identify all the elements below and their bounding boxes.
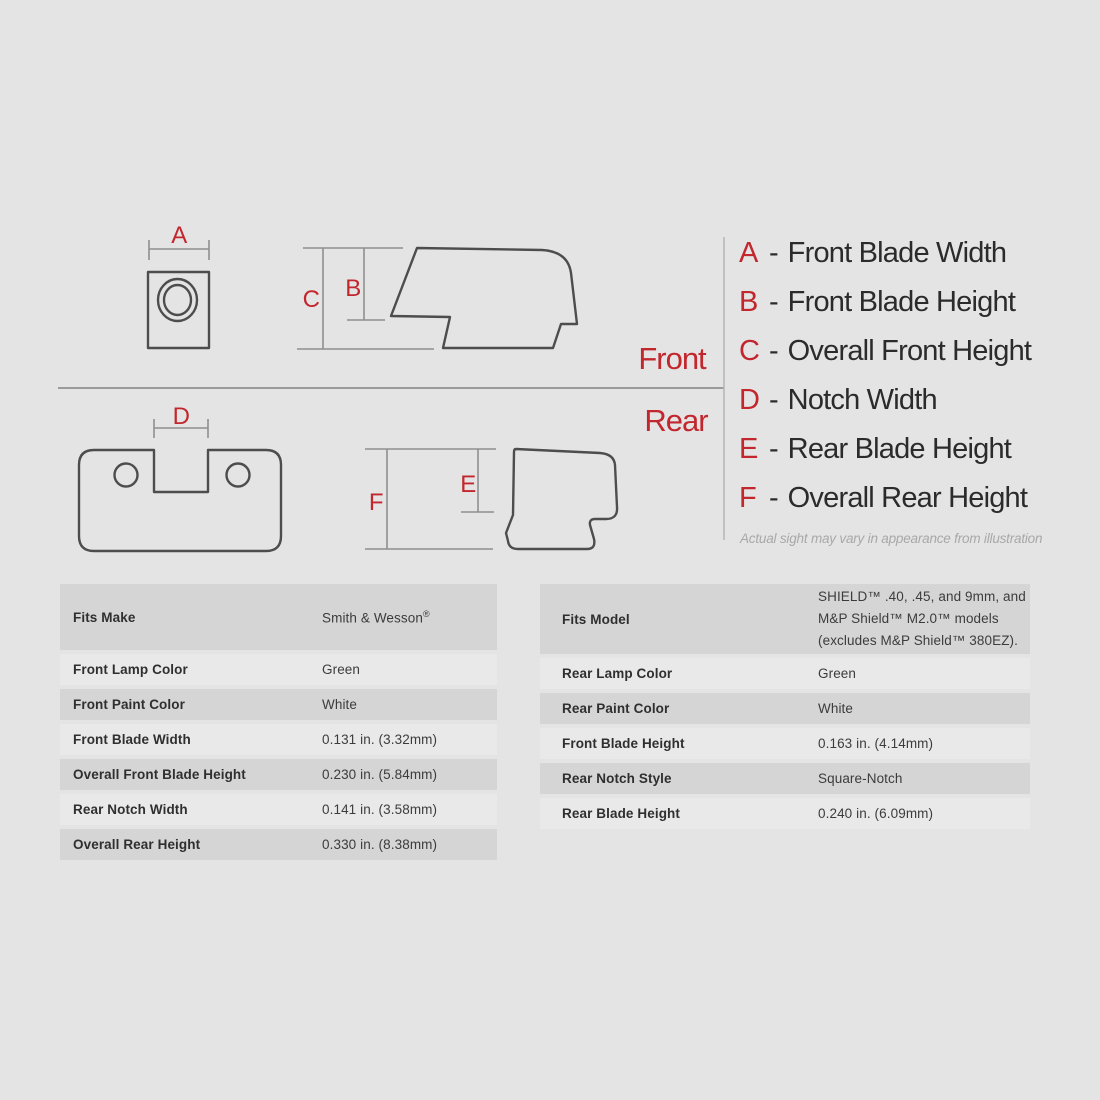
dim-letter-a: A — [171, 222, 187, 250]
legend-item-a: A - Front Blade Width — [739, 229, 1031, 278]
legend-key: E — [739, 433, 763, 466]
spec-value: Green — [818, 663, 1030, 685]
legend-separator: - — [769, 433, 779, 466]
legend-key: D — [739, 384, 763, 417]
legend-item-c: C - Overall Front Height — [739, 327, 1031, 376]
front-sight-side-view — [297, 248, 577, 349]
rear-sight-body — [79, 450, 281, 551]
spec-label: Rear Paint Color — [540, 701, 818, 716]
table-row: Front Paint Color White — [60, 689, 497, 720]
legend-separator: - — [769, 384, 779, 417]
rear-lamp-left — [115, 464, 138, 487]
legend-key: B — [739, 286, 763, 319]
legend-label: Overall Front Height — [788, 335, 1032, 368]
spec-label: Fits Model — [540, 612, 818, 627]
spec-label: Rear Lamp Color — [540, 666, 818, 681]
table-row: Overall Front Blade Height 0.230 in. (5.… — [60, 759, 497, 790]
spec-value: Square-Notch — [818, 768, 1030, 790]
table-row: Front Blade Height 0.163 in. (4.14mm) — [540, 728, 1030, 759]
dim-letter-c: C — [303, 286, 320, 314]
spec-label: Fits Make — [60, 610, 322, 625]
table-row: Front Blade Width 0.131 in. (3.32mm) — [60, 724, 497, 755]
legend-key: A — [739, 237, 763, 270]
spec-table-left: Fits Make Smith & Wesson® Front Lamp Col… — [60, 584, 497, 864]
spec-value: Smith & Wesson® — [322, 609, 430, 626]
table-row: Rear Blade Height 0.240 in. (6.09mm) — [540, 798, 1030, 829]
front-sight-body — [148, 272, 209, 348]
front-sight-profile — [391, 248, 577, 348]
legend-separator: - — [769, 286, 779, 319]
table-row: Rear Notch Style Square-Notch — [540, 763, 1030, 794]
table-row: Fits Model SHIELD™ .40, .45, and 9mm, an… — [540, 584, 1030, 654]
table-row: Front Lamp Color Green — [60, 654, 497, 685]
spec-label: Rear Blade Height — [540, 806, 818, 821]
legend-separator: - — [769, 237, 779, 270]
spec-value: 0.240 in. (6.09mm) — [818, 803, 1030, 825]
spec-label: Rear Notch Width — [60, 802, 322, 817]
table-row: Fits Make Smith & Wesson® — [60, 584, 497, 650]
spec-value: SHIELD™ .40, .45, and 9mm, and M&P Shiel… — [818, 586, 1030, 652]
table-row: Rear Notch Width 0.141 in. (3.58mm) — [60, 794, 497, 825]
spec-value: 0.330 in. (8.38mm) — [322, 837, 437, 852]
spec-table-right: Fits Model SHIELD™ .40, .45, and 9mm, an… — [540, 584, 1030, 833]
registered-mark: ® — [423, 609, 430, 619]
front-sight-front-view — [148, 240, 209, 348]
legend-item-d: D - Notch Width — [739, 376, 1031, 425]
spec-label: Front Paint Color — [60, 697, 322, 712]
rear-sight-front-view — [79, 419, 281, 551]
legend-key: F — [739, 482, 763, 515]
spec-value: Green — [322, 662, 360, 677]
dim-letter-d: D — [173, 403, 190, 431]
legend-label: Notch Width — [788, 384, 937, 417]
front-lamp-inner-ring — [164, 285, 191, 315]
rear-lamp-right — [227, 464, 250, 487]
spec-label: Front Blade Width — [60, 732, 322, 747]
rear-sight-side-view — [365, 449, 617, 549]
sight-spec-sheet: A B C D E F Front Rear A - Front Blade W… — [0, 0, 1100, 1100]
legend-label: Overall Rear Height — [788, 482, 1027, 515]
dim-letter-f: F — [369, 489, 383, 517]
dimension-legend: A - Front Blade Width B - Front Blade He… — [739, 229, 1031, 523]
spec-value: White — [322, 697, 357, 712]
dim-letter-b: B — [345, 275, 361, 303]
spec-label: Rear Notch Style — [540, 771, 818, 786]
spec-label: Overall Front Blade Height — [60, 767, 322, 782]
legend-label: Front Blade Width — [788, 237, 1007, 270]
legend-separator: - — [769, 335, 779, 368]
table-row: Overall Rear Height 0.330 in. (8.38mm) — [60, 829, 497, 860]
legend-item-e: E - Rear Blade Height — [739, 425, 1031, 474]
rear-section-label: Rear — [644, 403, 707, 439]
legend-separator: - — [769, 482, 779, 515]
table-row: Rear Paint Color White — [540, 693, 1030, 724]
illustration-disclaimer: Actual sight may vary in appearance from… — [740, 531, 1042, 546]
legend-item-b: B - Front Blade Height — [739, 278, 1031, 327]
legend-label: Front Blade Height — [788, 286, 1015, 319]
dim-letter-e: E — [460, 471, 476, 499]
spec-value: 0.230 in. (5.84mm) — [322, 767, 437, 782]
spec-value: 0.141 in. (3.58mm) — [322, 802, 437, 817]
legend-item-f: F - Overall Rear Height — [739, 474, 1031, 523]
front-section-label: Front — [638, 341, 705, 377]
spec-label: Front Blade Height — [540, 736, 818, 751]
rear-sight-profile — [506, 449, 617, 549]
legend-label: Rear Blade Height — [788, 433, 1011, 466]
spec-value: White — [818, 698, 1030, 720]
legend-key: C — [739, 335, 763, 368]
spec-value: 0.131 in. (3.32mm) — [322, 732, 437, 747]
spec-value: 0.163 in. (4.14mm) — [818, 733, 1030, 755]
spec-value-text: Smith & Wesson — [322, 610, 423, 625]
spec-label: Overall Rear Height — [60, 837, 322, 852]
spec-label: Front Lamp Color — [60, 662, 322, 677]
table-row: Rear Lamp Color Green — [540, 658, 1030, 689]
